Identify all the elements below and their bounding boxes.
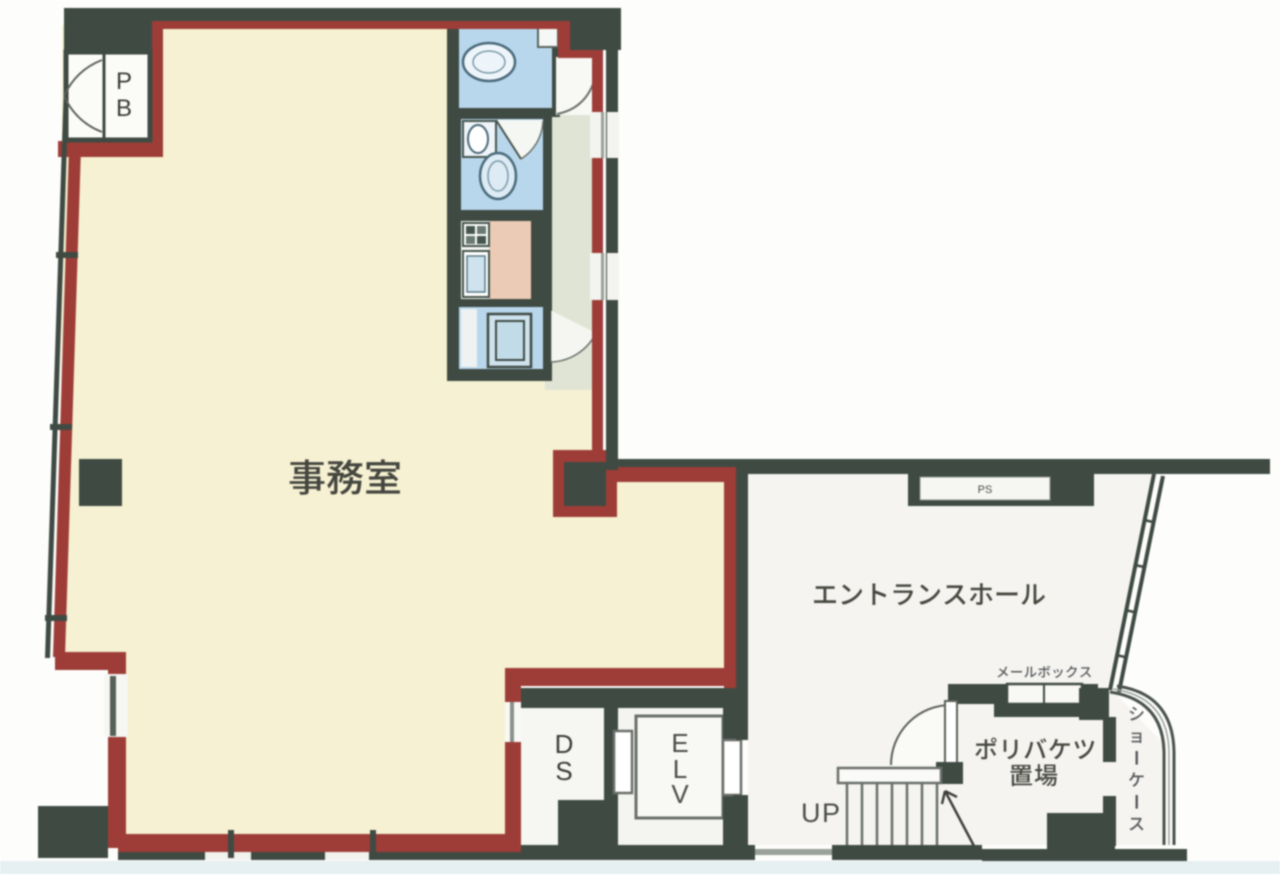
svg-text:B: B — [116, 95, 132, 122]
svg-text:PS: PS — [978, 484, 993, 496]
svg-text:V: V — [671, 779, 689, 809]
svg-text:UP: UP — [801, 798, 842, 828]
svg-text:S: S — [555, 756, 572, 786]
svg-text:P: P — [116, 68, 132, 95]
svg-text:D: D — [555, 729, 574, 759]
